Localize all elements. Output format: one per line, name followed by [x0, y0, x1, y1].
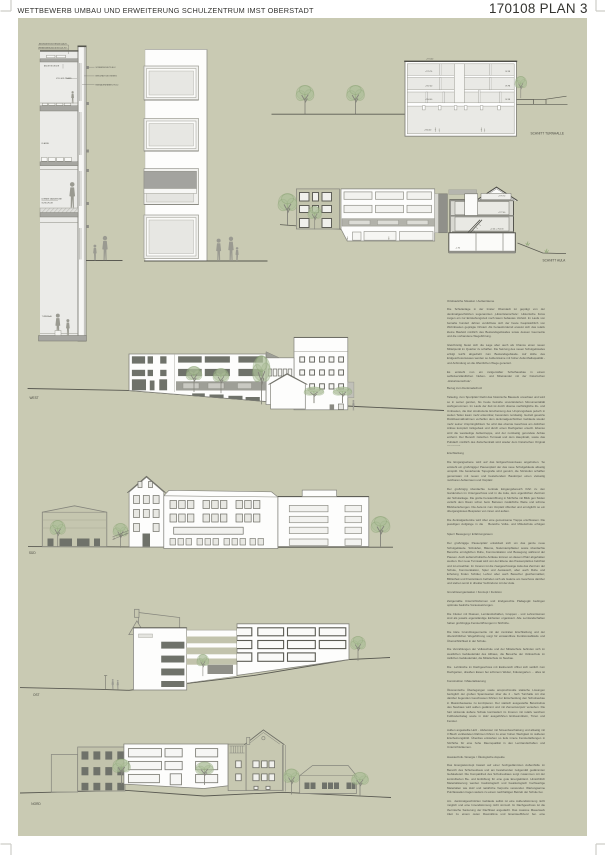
svg-text:VOLLHOLZWAND: VOLLHOLZWAND: [56, 77, 72, 80]
svg-text:LEHRER GARDEROBE: LEHRER GARDEROBE: [42, 197, 63, 200]
svg-text:+760.00: +760.00: [424, 129, 432, 131]
svg-text:SCHULFLUR: SCHULFLUR: [42, 202, 54, 204]
svg-text:OK FB: OK FB: [505, 99, 511, 101]
svg-text:KLASSE: KLASSE: [42, 142, 50, 145]
svg-text:+0.00 = 764.00: +0.00 = 764.00: [490, 229, 504, 231]
svg-text:WEST: WEST: [30, 396, 39, 400]
svg-text:TURNSAAL: TURNSAAL: [42, 315, 52, 318]
svg-text:+779.70: +779.70: [498, 196, 506, 198]
svg-text:SCHNITT TURNHALLE: SCHNITT TURNHALLE: [531, 131, 565, 135]
svg-text:SÜD: SÜD: [29, 551, 36, 555]
svg-text:+764.00: +764.00: [425, 99, 433, 101]
svg-text:SONNENSCHUTZ ALU: SONNENSCHUTZ ALU: [96, 66, 116, 69]
svg-text:OK FB: OK FB: [505, 71, 511, 73]
svg-text:OK FB: OK FB: [505, 85, 511, 87]
svg-text:+770.76: +770.76: [425, 71, 433, 73]
svg-text:SCHNITT AULA: SCHNITT AULA: [543, 259, 567, 263]
svg-text:AKUSTIK DECKE: AKUSTIK DECKE: [44, 64, 60, 67]
svg-text:FASSADENPANEEL HOLZ: FASSADENPANEEL HOLZ: [96, 83, 120, 86]
svg-text:+777.00: +777.00: [498, 212, 506, 214]
svg-text:OST: OST: [33, 693, 40, 697]
svg-text:+767.40: +767.40: [425, 85, 433, 87]
svg-text:NORD: NORD: [31, 802, 41, 806]
svg-text:BESCHATTUNG SENKR.: BESCHATTUNG SENKR.: [96, 75, 118, 78]
svg-text:+774.00: +774.00: [426, 58, 434, 60]
